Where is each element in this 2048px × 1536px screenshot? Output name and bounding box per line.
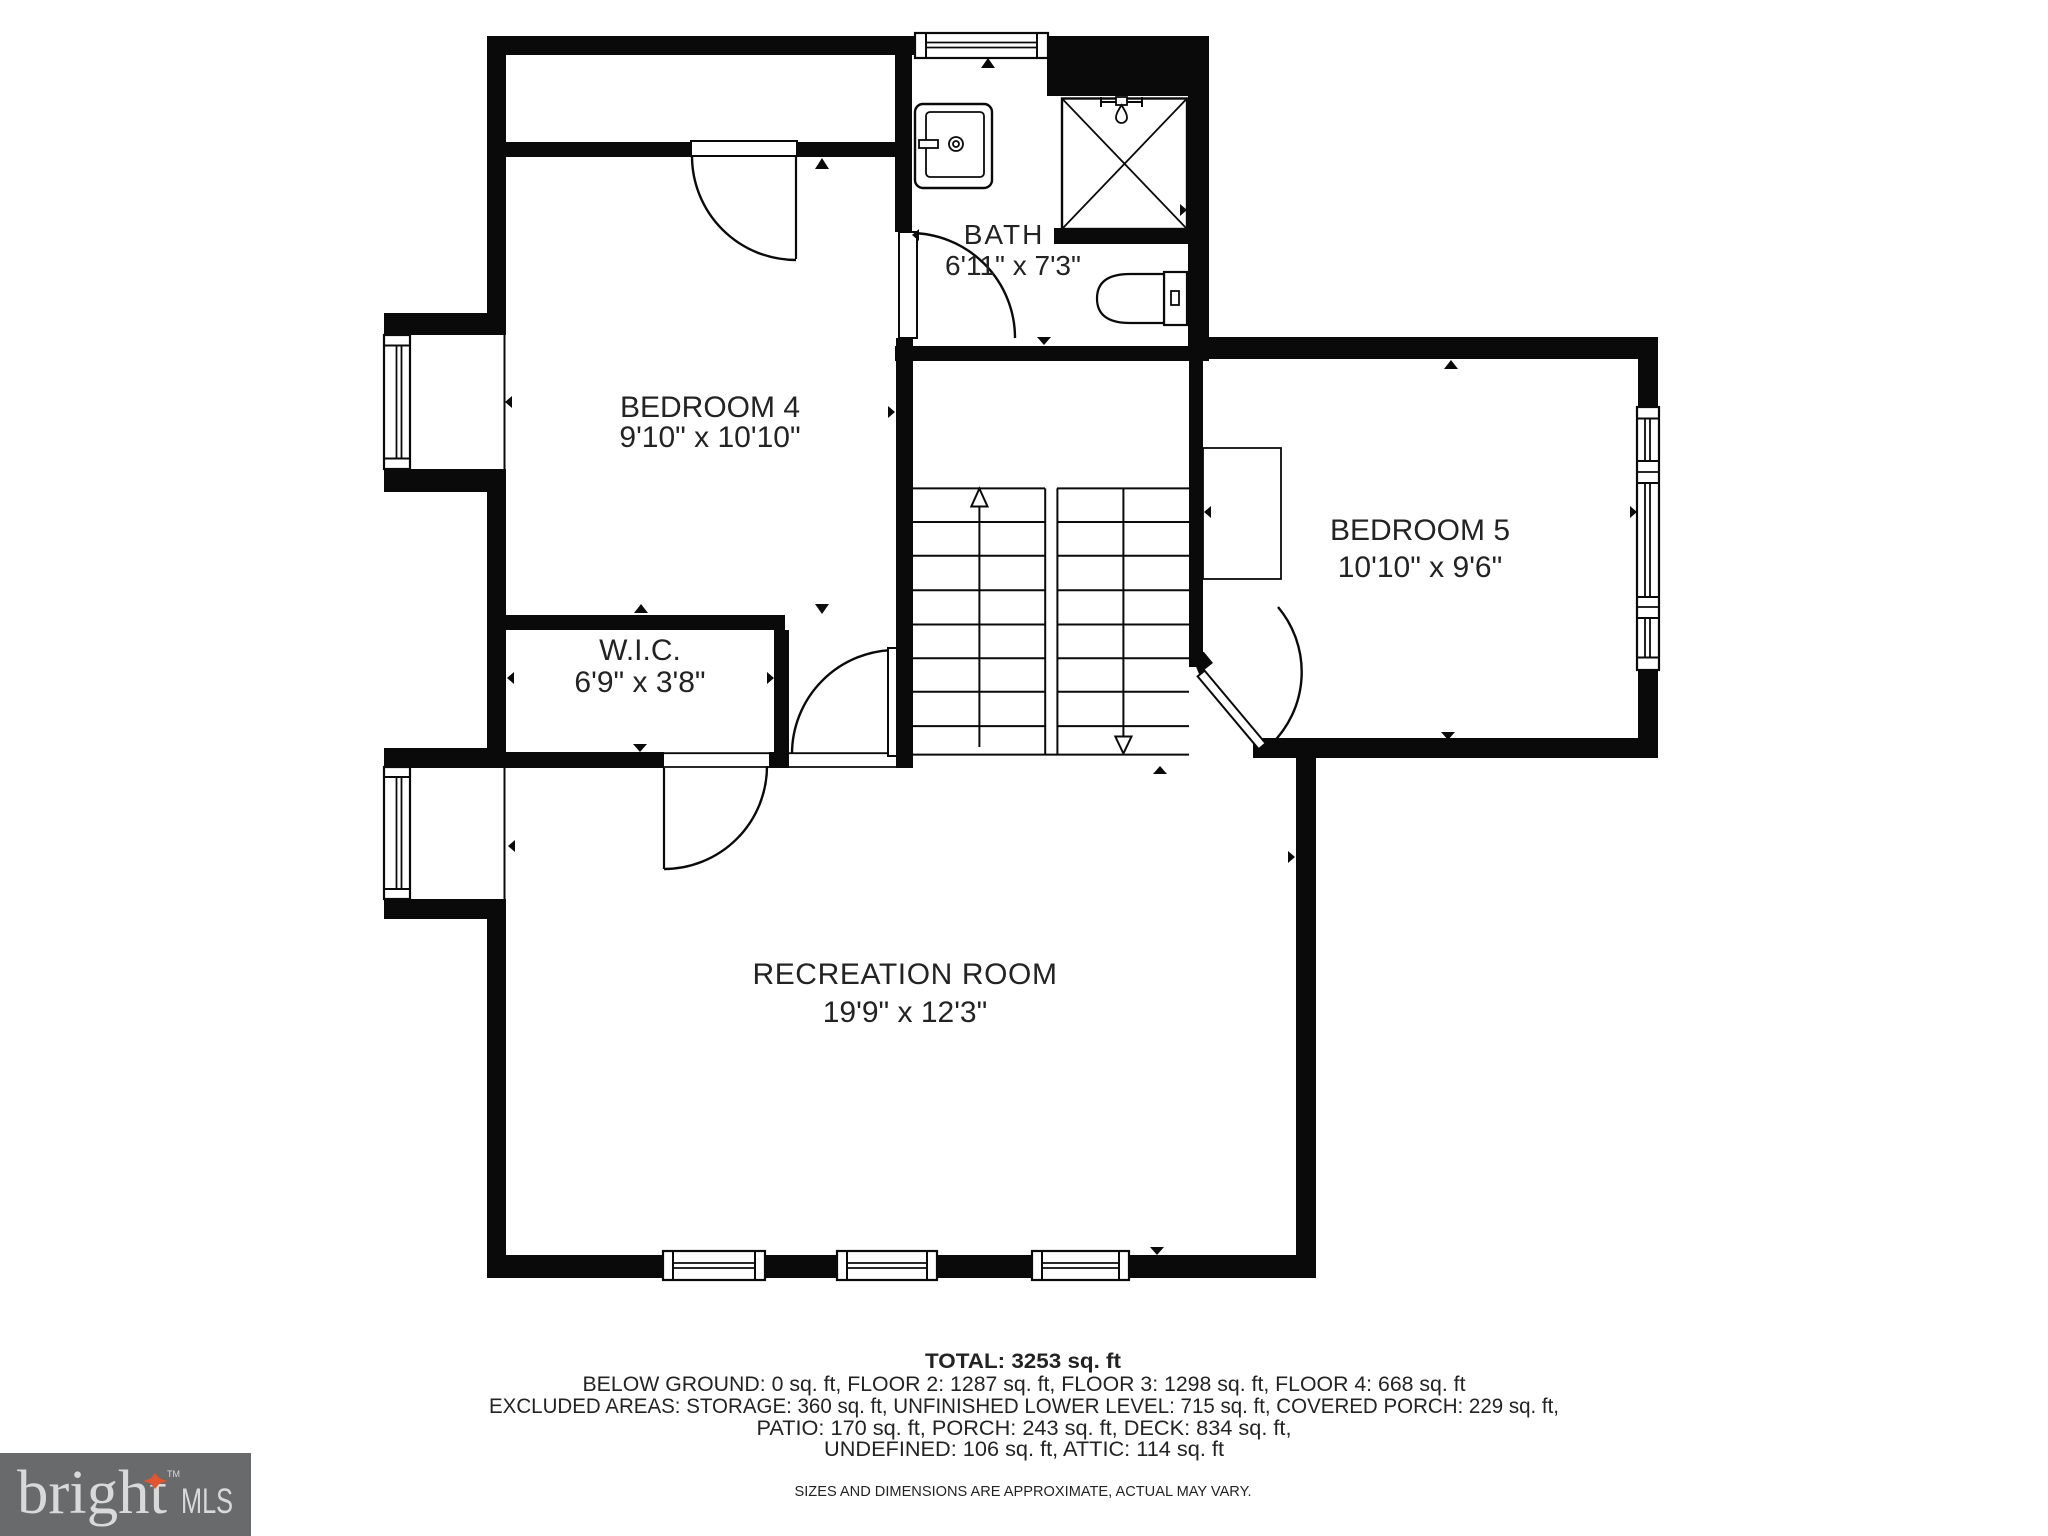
svg-text:EXCLUDED AREAS: STORAGE: 360 s: EXCLUDED AREAS: STORAGE: 360 sq. ft, UNF…	[489, 1395, 1559, 1418]
svg-text:6'9" x 3'8": 6'9" x 3'8"	[574, 666, 705, 699]
svg-text:BATH: BATH	[964, 219, 1045, 250]
svg-text:SIZES AND DIMENSIONS ARE APPRO: SIZES AND DIMENSIONS ARE APPROXIMATE, AC…	[795, 1483, 1252, 1500]
svg-text:TOTAL: 3253 sq. ft: TOTAL: 3253 sq. ft	[925, 1350, 1121, 1373]
svg-text:BEDROOM 4: BEDROOM 4	[620, 391, 800, 424]
svg-text:19'9" x 12'3": 19'9" x 12'3"	[823, 996, 988, 1029]
svg-text:UNDEFINED: 106 sq. ft, ATTIC:: UNDEFINED: 106 sq. ft, ATTIC: 114 sq. ft	[824, 1438, 1224, 1461]
svg-text:PATIO: 170 sq. ft, PORCH: 243: PATIO: 170 sq. ft, PORCH: 243 sq. ft, DE…	[757, 1417, 1292, 1440]
svg-text:BELOW GROUND: 0 sq. ft, FLOOR: BELOW GROUND: 0 sq. ft, FLOOR 2: 1287 sq…	[583, 1373, 1466, 1396]
svg-text:10'10" x 9'6": 10'10" x 9'6"	[1338, 551, 1503, 584]
svg-text:MLS: MLS	[181, 1482, 233, 1521]
svg-text:RECREATION ROOM: RECREATION ROOM	[752, 958, 1057, 991]
svg-text:9'10" x 10'10": 9'10" x 10'10"	[619, 421, 800, 454]
svg-text:BEDROOM 5: BEDROOM 5	[1330, 514, 1510, 547]
svg-text:W.I.C.: W.I.C.	[599, 634, 681, 667]
svg-text:TM: TM	[167, 1469, 180, 1479]
svg-text:6'11" x 7'3": 6'11" x 7'3"	[945, 250, 1081, 281]
svg-text:bright: bright	[17, 1459, 167, 1527]
